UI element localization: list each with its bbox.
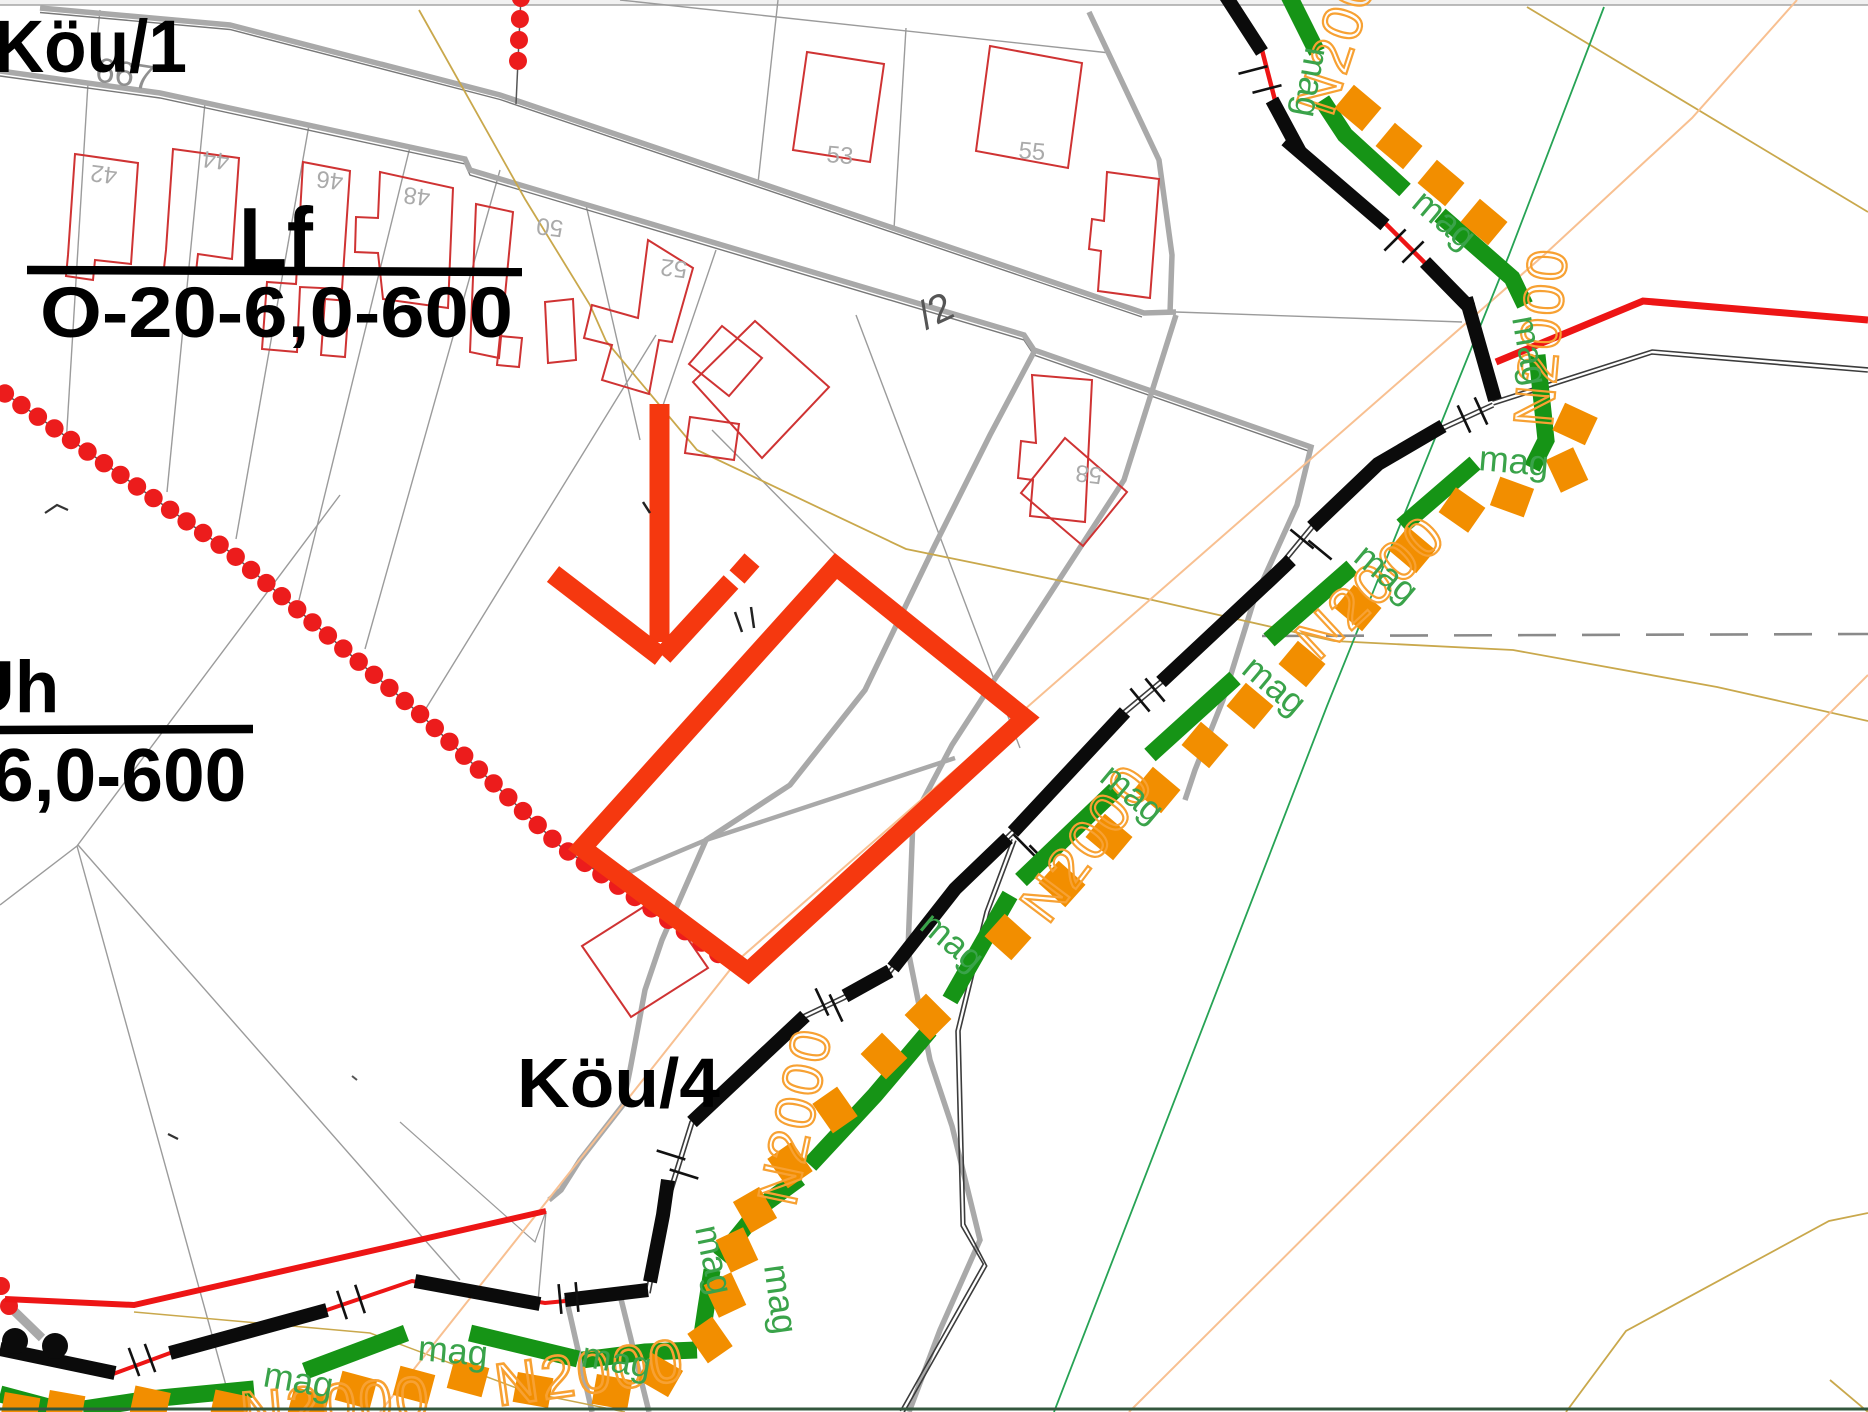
svg-text:53: 53 — [825, 141, 854, 170]
svg-text:O-20-6,0-600: O-20-6,0-600 — [40, 274, 513, 353]
svg-text:mag: mag — [416, 1327, 489, 1374]
svg-text:44: 44 — [201, 145, 231, 175]
svg-text:42: 42 — [89, 159, 119, 189]
svg-text:Uh: Uh — [0, 647, 59, 728]
svg-text:46: 46 — [315, 165, 345, 195]
svg-text:58: 58 — [1074, 459, 1104, 489]
svg-text:Köu/1: Köu/1 — [0, 5, 187, 88]
svg-text:50: 50 — [535, 212, 565, 242]
svg-text:52: 52 — [659, 253, 689, 283]
svg-text:48: 48 — [402, 181, 432, 211]
svg-text:mag: mag — [1477, 437, 1550, 484]
svg-text:6,0-600: 6,0-600 — [0, 733, 246, 817]
svg-text:55: 55 — [1017, 137, 1046, 166]
svg-text:Köu/4: Köu/4 — [517, 1044, 720, 1122]
